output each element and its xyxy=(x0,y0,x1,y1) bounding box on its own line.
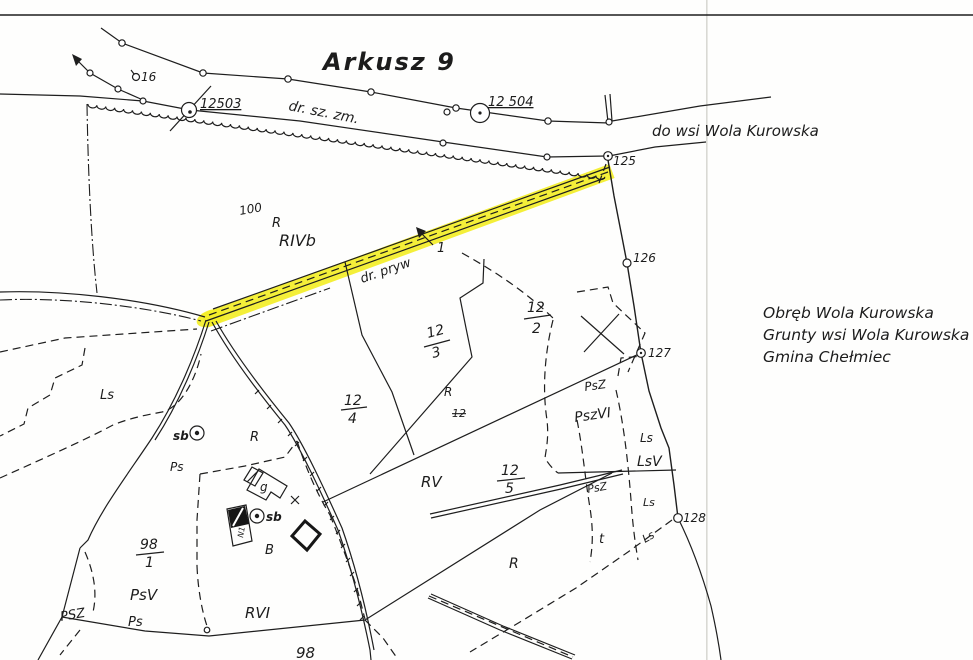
road-southeast xyxy=(428,594,575,659)
dashed-boundaries xyxy=(0,253,672,658)
parcel-12-5-den: 5 xyxy=(505,481,514,497)
landuse-r-farm: R xyxy=(250,430,259,445)
landuse-r-south: R xyxy=(509,556,519,572)
landuse-lsv: LsV xyxy=(637,454,663,470)
parcel-12-2-den: 2 xyxy=(532,321,541,337)
parcel-12-2-num: 12 xyxy=(527,300,545,316)
paper-fold-line xyxy=(706,0,708,660)
landuse-ls-e1: Ls xyxy=(640,431,653,445)
landuse-b: B xyxy=(265,543,274,558)
parcel-98-1-den: 1 xyxy=(145,555,154,571)
point-16-circle xyxy=(133,74,140,81)
parcel-12-3-den: 3 xyxy=(430,344,443,362)
boundary-east xyxy=(608,160,721,660)
landuse-pszvi: PszVI xyxy=(573,405,612,426)
landuse-r-top: R xyxy=(272,216,281,231)
landuse-ps-b: Ps xyxy=(128,615,143,630)
landuse-r-mid: R xyxy=(444,385,452,399)
well-sb-2: sb xyxy=(266,510,282,524)
landuse-ps-a: Ps xyxy=(170,460,184,474)
landuse-psz-c: PSZ xyxy=(59,606,87,625)
parcel-98-1-num: 98 xyxy=(140,537,158,553)
note-line-3: Gmina Chełmiec xyxy=(763,348,891,366)
landuse-psz-a: PsZ xyxy=(583,377,607,394)
sheet-title: Arkusz 9 xyxy=(321,48,456,76)
parcel-12-3-num: 12 xyxy=(425,322,446,342)
point-16: 16 xyxy=(141,70,157,84)
point-12503-circle xyxy=(182,103,197,118)
note-line-1: Obręb Wola Kurowska xyxy=(763,304,934,322)
landuse-psz-b: PsZ xyxy=(586,480,608,496)
parcel-12-4-num: 12 xyxy=(344,393,362,409)
crossed-out-mark xyxy=(581,314,624,354)
note-line-2: Grunty wsi Wola Kurowska xyxy=(763,326,969,344)
highlight-stroke xyxy=(204,171,612,321)
point-128: 128 xyxy=(683,511,706,525)
parcel-1-arrow: 1 xyxy=(437,241,445,256)
labels-layer: Arkusz 91612503dr. sz. zm.12 504do wsi W… xyxy=(59,48,969,660)
landuse-psv: PsV xyxy=(130,586,159,604)
point-12504: 12 504 xyxy=(488,95,534,110)
well-sb-1: sb xyxy=(173,429,189,443)
parcel-100: 100 xyxy=(238,200,263,218)
road-dr-sz-zm: dr. sz. zm. xyxy=(287,98,360,127)
farm-road xyxy=(212,321,374,660)
landuse-t: t xyxy=(599,532,605,547)
landuse-ls-e2: Ls xyxy=(643,496,655,509)
point-126-circle xyxy=(623,259,631,267)
landuse-ls-road: Ls xyxy=(640,528,657,545)
building-g-label: g xyxy=(260,480,268,494)
survey-nodes xyxy=(87,40,682,633)
road-do-wsi: do wsi Wola Kurowska xyxy=(652,122,819,140)
parcel-12-5-num: 12 xyxy=(501,463,519,479)
map-canvas: Arkusz 91612503dr. sz. zm.12 504do wsi W… xyxy=(0,0,973,660)
building-n1-label: N1 xyxy=(236,526,247,538)
cadastral-map-sheet: Arkusz 91612503dr. sz. zm.12 504do wsi W… xyxy=(0,0,973,660)
parcel-98: 98 xyxy=(296,644,315,660)
point-127: 127 xyxy=(648,346,671,360)
landuse-rivb: RIVb xyxy=(279,231,316,250)
point-128-circle xyxy=(674,514,683,523)
landuse-rv: RV xyxy=(421,473,443,491)
point-126: 126 xyxy=(633,251,656,265)
landuse-rvi: RVI xyxy=(245,604,271,622)
boundary-x-mark xyxy=(291,496,299,504)
parcel-12-struck: 12 xyxy=(452,407,466,420)
parcel-12-4-den: 4 xyxy=(348,411,357,427)
point-12503: 12503 xyxy=(200,97,241,112)
landuse-ls-west: Ls xyxy=(100,388,114,403)
point-125: 125 xyxy=(613,154,636,168)
building-square xyxy=(292,521,320,550)
